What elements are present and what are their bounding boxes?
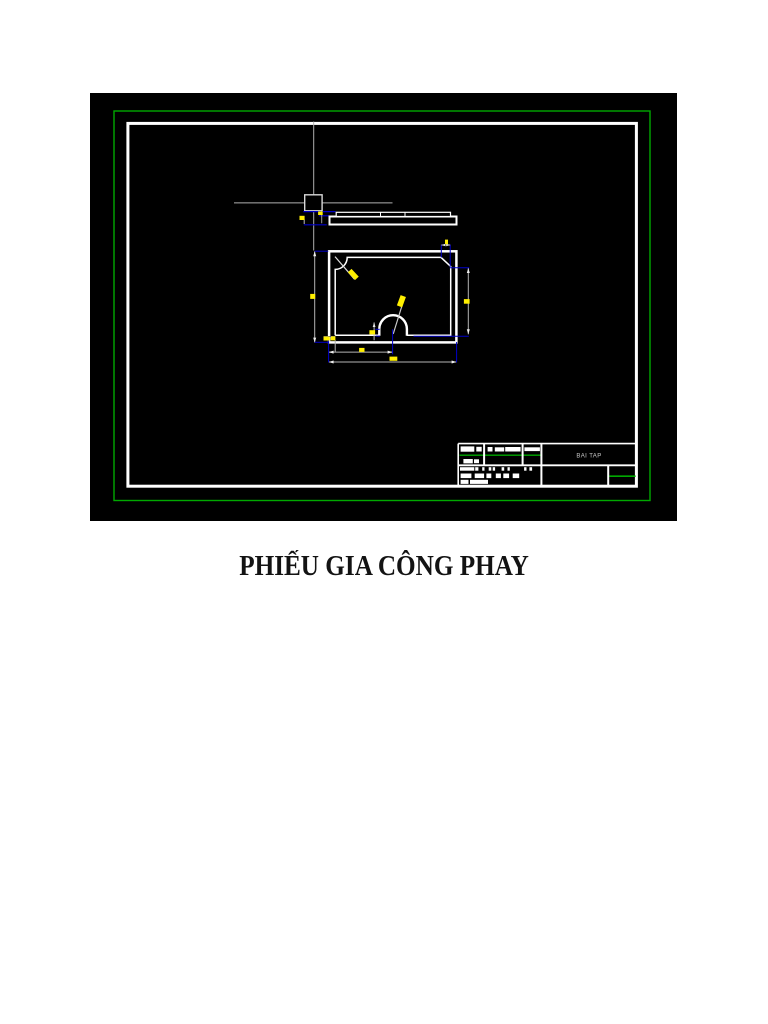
svg-text:BAI TAP: BAI TAP	[576, 454, 601, 460]
